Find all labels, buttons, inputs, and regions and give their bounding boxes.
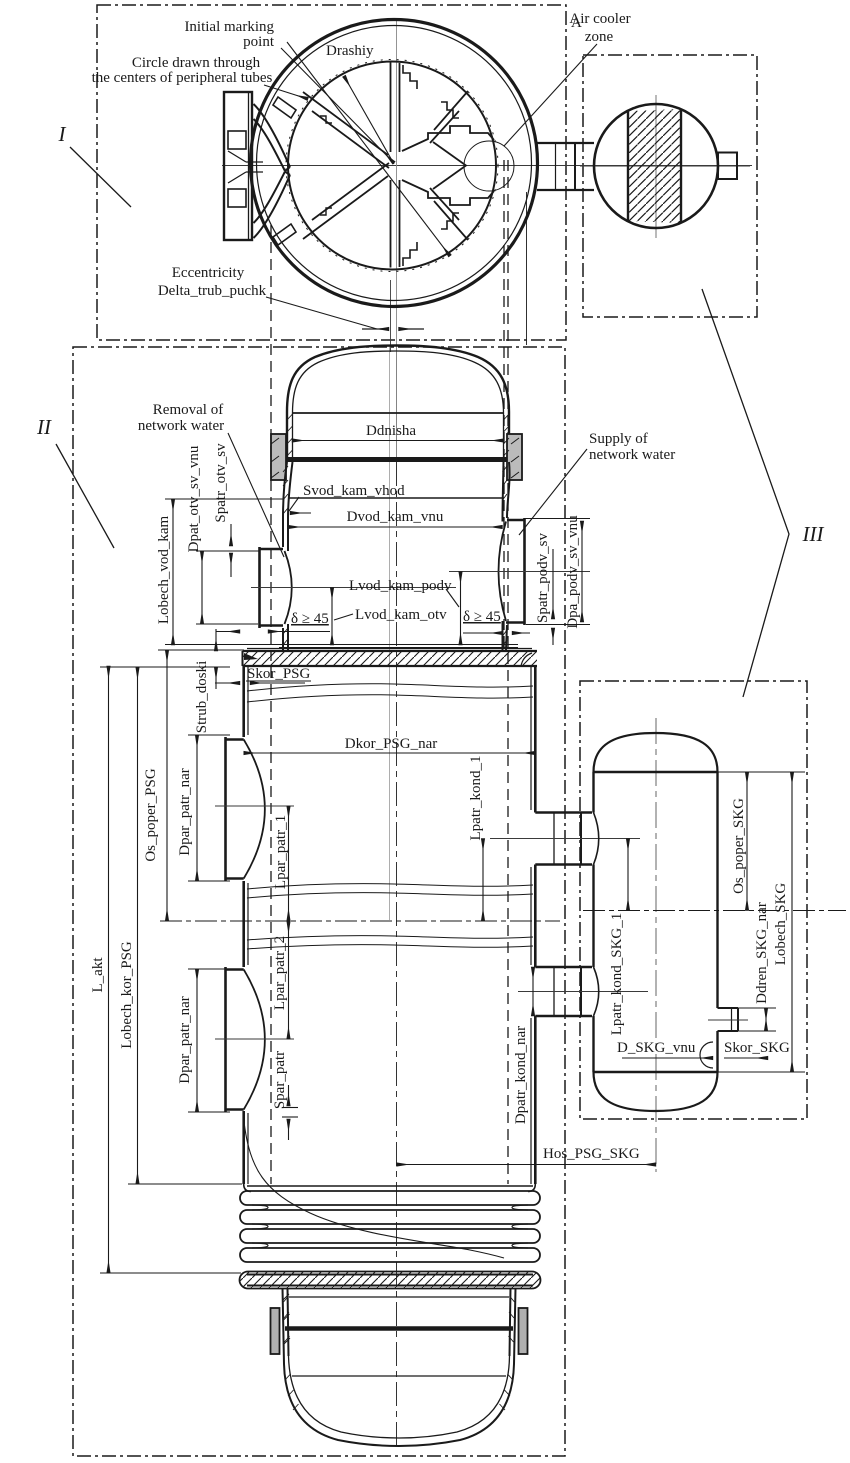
- svg-text:Initial marking: Initial marking: [184, 19, 274, 35]
- svg-text:Dvod_kam_vnu: Dvod_kam_vnu: [347, 509, 444, 525]
- svg-text:Lobech_kor_PSG: Lobech_kor_PSG: [119, 941, 135, 1049]
- svg-text:Ddnisha: Ddnisha: [366, 423, 416, 439]
- svg-text:Spatr_otv_sv: Spatr_otv_sv: [213, 443, 229, 523]
- svg-text:Lpar_patr_2: Lpar_patr_2: [272, 936, 288, 1010]
- svg-text:Dpar_patr_nar: Dpar_patr_nar: [177, 768, 193, 855]
- svg-text:network water: network water: [589, 447, 675, 463]
- svg-text:Strub_doski: Strub_doski: [194, 661, 210, 734]
- svg-text:the centers of peripheral tube: the centers of peripheral tubes: [92, 70, 273, 86]
- svg-text:Os_poper_SKG: Os_poper_SKG: [731, 798, 747, 894]
- svg-text:Spatr_podv_sv: Spatr_podv_sv: [535, 533, 551, 624]
- svg-text:Dkor_PSG_nar: Dkor_PSG_nar: [345, 736, 438, 752]
- svg-text:Lobech_vod_kam: Lobech_vod_kam: [156, 516, 172, 625]
- svg-text:Eccentricity: Eccentricity: [172, 265, 245, 281]
- svg-text:Circle drawn through: Circle drawn through: [132, 55, 261, 71]
- svg-text:Os_poper_PSG: Os_poper_PSG: [143, 768, 159, 862]
- svg-text:Dpatr_kond_nar: Dpatr_kond_nar: [513, 1026, 529, 1124]
- svg-text:Lvod_kam_otv: Lvod_kam_otv: [355, 607, 447, 623]
- svg-text:Dpat_otv_sv_vnu: Dpat_otv_sv_vnu: [186, 445, 202, 552]
- svg-text:zone: zone: [585, 29, 614, 45]
- svg-text:Dpar_patr_nar: Dpar_patr_nar: [177, 996, 193, 1083]
- svg-text:Hos_PSG_SKG: Hos_PSG_SKG: [543, 1146, 640, 1162]
- svg-text:Skor_SKG: Skor_SKG: [724, 1040, 790, 1056]
- svg-text:III: III: [802, 522, 825, 546]
- svg-text:Air cooler: Air cooler: [569, 11, 630, 27]
- svg-text:Lvod_kam_podv: Lvod_kam_podv: [349, 578, 452, 594]
- svg-text:Delta_trub_puchk: Delta_trub_puchk: [158, 283, 267, 299]
- svg-text:L_akt: L_akt: [90, 957, 106, 993]
- svg-text:I: I: [58, 122, 67, 146]
- svg-text:δ ≥ 45: δ ≥ 45: [291, 611, 329, 627]
- svg-text:network water: network water: [138, 418, 224, 434]
- svg-text:Lpar_patr_1: Lpar_patr_1: [273, 815, 289, 889]
- svg-text:II: II: [36, 415, 52, 439]
- svg-text:Ddren_SKG_nar: Ddren_SKG_nar: [754, 902, 770, 1004]
- svg-text:Removal of: Removal of: [153, 402, 223, 418]
- svg-text:point: point: [243, 34, 275, 50]
- svg-text:Skor_PSG: Skor_PSG: [247, 666, 311, 682]
- svg-text:Drashiy: Drashiy: [326, 43, 374, 59]
- svg-text:Lpatr_kond_1: Lpatr_kond_1: [468, 756, 484, 841]
- svg-text:Supply of: Supply of: [589, 431, 648, 447]
- svg-text:δ ≥ 45: δ ≥ 45: [463, 609, 501, 625]
- svg-text:D_SKG_vnu: D_SKG_vnu: [617, 1040, 696, 1056]
- svg-text:Dpa_podv_sv_vnu: Dpa_podv_sv_vnu: [565, 515, 581, 629]
- svg-text:Svod_kam_vhod: Svod_kam_vhod: [303, 483, 405, 499]
- svg-text:Spar_patr: Spar_patr: [272, 1051, 288, 1109]
- svg-text:Lpatr_kond_SKG_1: Lpatr_kond_SKG_1: [609, 913, 625, 1036]
- svg-text:Lobech_SKG: Lobech_SKG: [773, 883, 789, 966]
